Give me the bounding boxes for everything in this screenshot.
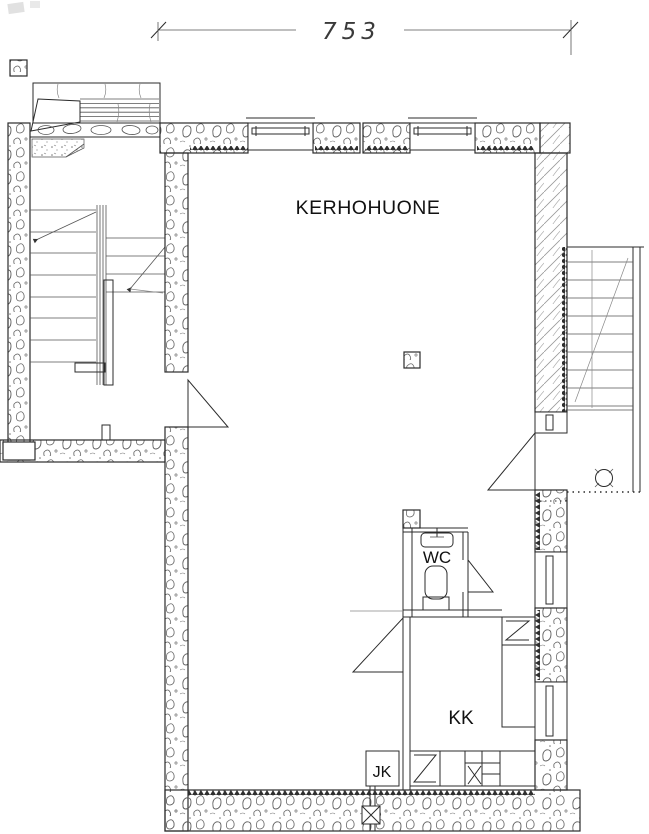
jk-label: JK [373,764,392,781]
window-right-1 [535,552,567,608]
doors [188,380,535,672]
wall-left [165,153,188,831]
chimney-block [10,60,27,76]
window-top-1 [246,118,315,150]
sink-icon [421,528,453,547]
door-swing-right-entrance [488,433,535,490]
stair-treads-right-flight [106,238,165,292]
tall-cabinet [502,617,535,645]
stairwell-left-walls [0,60,165,462]
column [404,352,420,368]
door-swing-left-entrance [188,380,228,427]
cabinet-zigzag-icon [414,755,436,782]
hatched-sill [75,363,105,372]
dimension-label: 753 [322,19,381,45]
window-right-small [535,412,567,433]
window-right-2 [535,682,567,740]
scan-artifacts [7,1,40,14]
door-swing-kitchenette [353,618,403,672]
kk-label: KK [448,708,474,729]
stairs-left [30,205,165,440]
stair-divider [97,205,106,385]
stairs-up-arrow [36,212,96,240]
insulation-sawtooth [562,247,567,412]
hatched-post [102,425,110,440]
stair-treads-right-exterior [567,262,633,410]
room-label-kerhohuone: KERHOHUONE [296,197,441,219]
insulation-sawtooth [477,146,533,151]
fridge-box: JK [366,751,399,786]
outer-wall-left [8,123,30,460]
floor-drain-icon [595,469,613,487]
entrance-porch [30,83,160,157]
stairs-up-arrow-2 [130,247,165,289]
stone-ledge [30,124,160,137]
porch-steps [80,99,159,121]
corner-block [540,123,570,153]
door-swing-wc [468,560,493,592]
insulation-sawtooth [315,146,358,151]
dimension-line: 753 [151,19,578,55]
window-top-2 [408,118,477,150]
stove-icon [465,751,500,786]
wall-vent [3,442,35,460]
counter-bottom [410,751,535,786]
stairs-right [567,247,644,492]
floor-plan-drawing: 753 [0,0,649,834]
toilet-icon [423,566,449,610]
stair-treads-left-flight [30,210,96,362]
insulation-sawtooth [190,146,248,151]
wall-top [160,118,570,153]
insulation-sawtooth [535,610,540,680]
wc-pillar [403,510,420,528]
floor-plan: 753 [0,0,649,834]
counter-side [502,645,535,727]
insulation-sawtooth [365,146,408,151]
wc-room: WC [350,510,502,618]
porch-ramp [31,99,80,131]
cabinet-zigzag-icon [506,621,529,640]
wc-label: WC [423,548,451,567]
wall-bottom [165,786,580,831]
concrete-pad [32,139,84,157]
insulation-sawtooth [188,790,535,796]
wall-right [535,153,567,790]
